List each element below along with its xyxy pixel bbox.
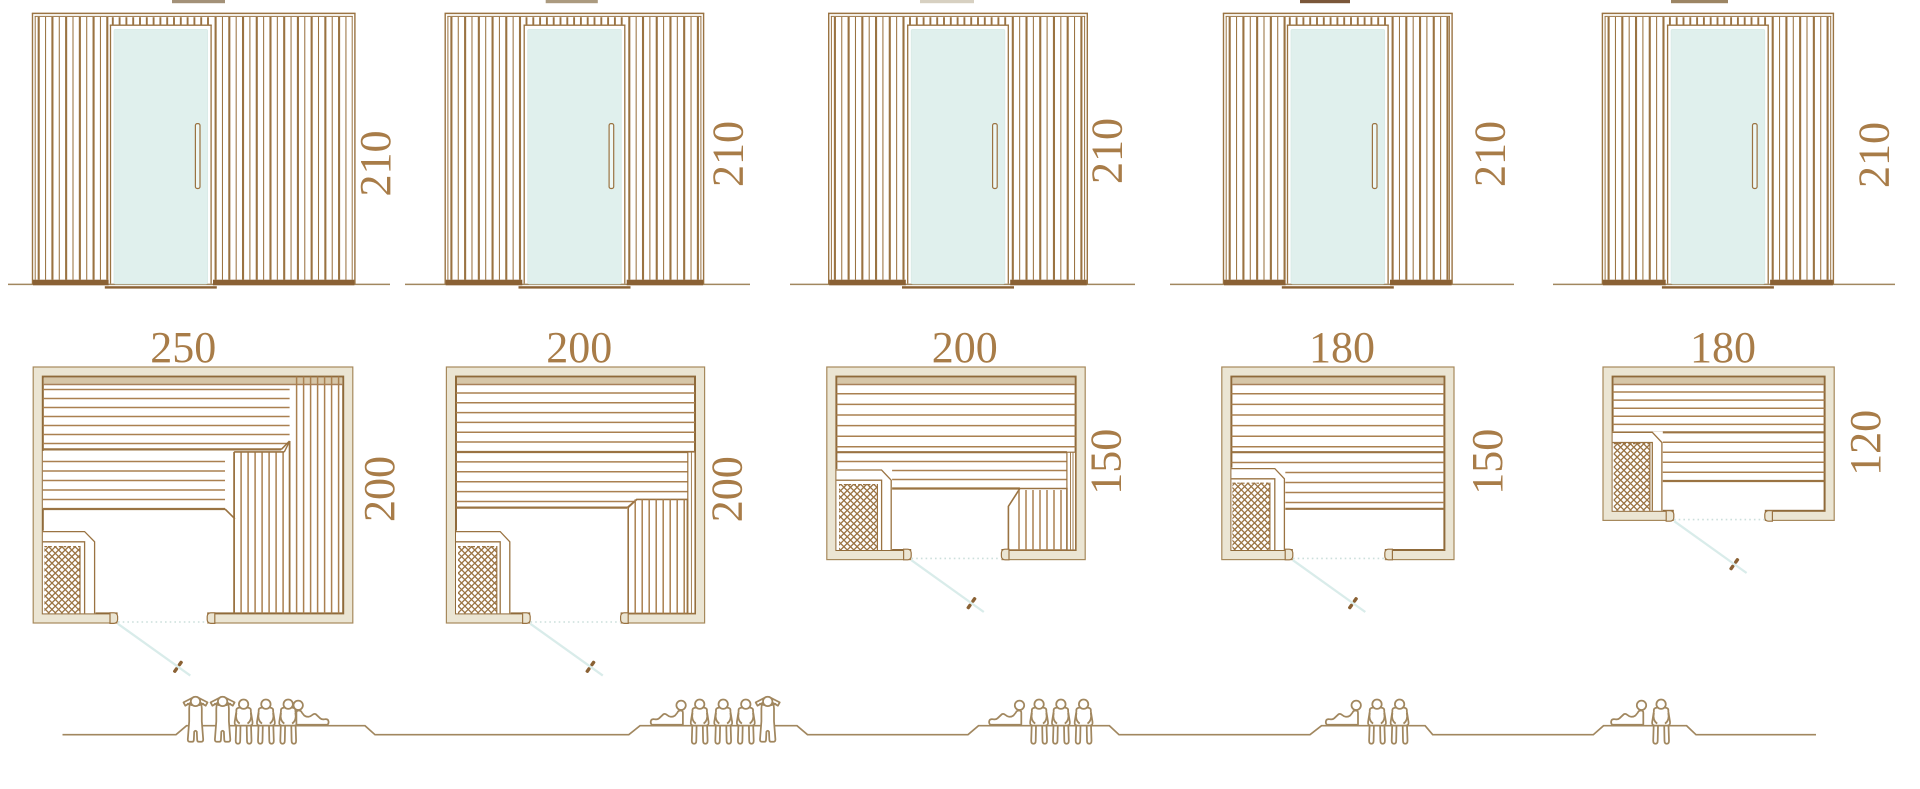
svg-text:210: 210	[704, 121, 753, 187]
svg-text:200: 200	[932, 323, 998, 372]
svg-text:210: 210	[1465, 121, 1514, 187]
svg-text:210: 210	[1083, 118, 1132, 184]
svg-text:200: 200	[546, 323, 612, 372]
svg-text:200: 200	[355, 456, 404, 522]
svg-text:180: 180	[1690, 323, 1756, 372]
svg-text:250: 250	[150, 323, 216, 372]
svg-text:210: 210	[351, 131, 400, 197]
svg-text:200: 200	[703, 456, 752, 522]
svg-text:150: 150	[1082, 429, 1131, 495]
svg-text:150: 150	[1463, 429, 1512, 495]
svg-text:120: 120	[1841, 410, 1890, 476]
svg-text:210: 210	[1849, 122, 1898, 188]
svg-text:180: 180	[1309, 323, 1375, 372]
